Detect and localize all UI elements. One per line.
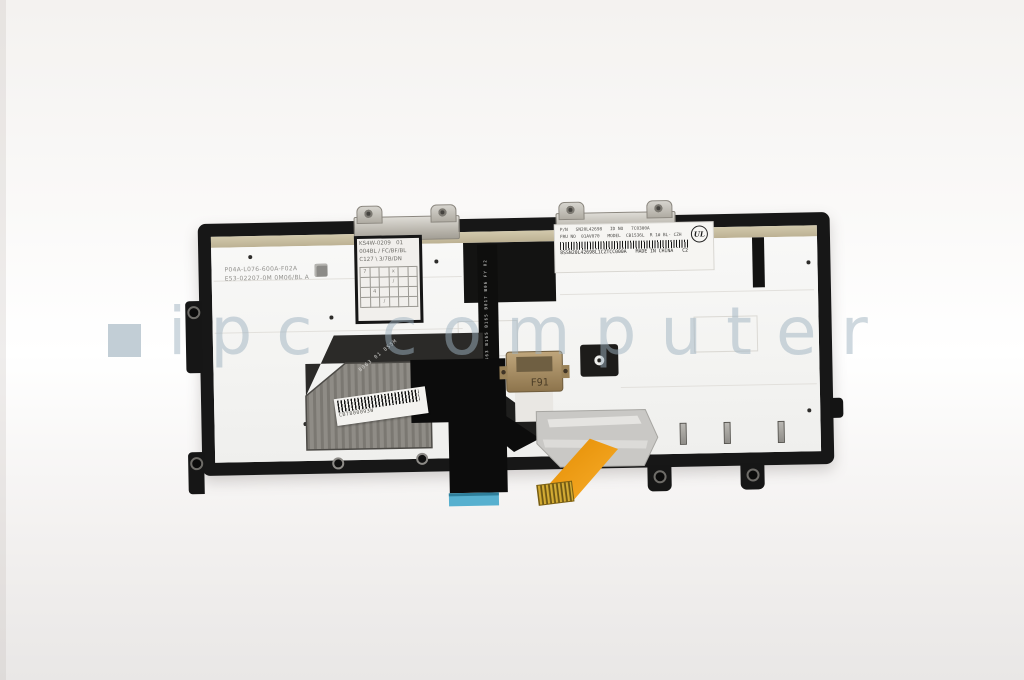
- screw-hole-icon: [748, 470, 757, 479]
- side-notch-right: [830, 398, 843, 418]
- bottom-screw-tab: [647, 465, 671, 491]
- connector-print: F91: [531, 377, 549, 388]
- screw-hole-icon: [192, 459, 201, 468]
- product-photo-stage: P04A-L076-600A-F02AE53-02207-0M 0M06/BL …: [0, 0, 1024, 680]
- side-tab-left-lower: [188, 452, 205, 494]
- screw-hole-icon: [655, 472, 664, 481]
- bottom-screw-tab: [740, 463, 764, 489]
- gold-finger-connector: [537, 481, 574, 505]
- watermark-square-icon: [108, 324, 141, 357]
- watermark-text: ipc computer: [168, 293, 892, 370]
